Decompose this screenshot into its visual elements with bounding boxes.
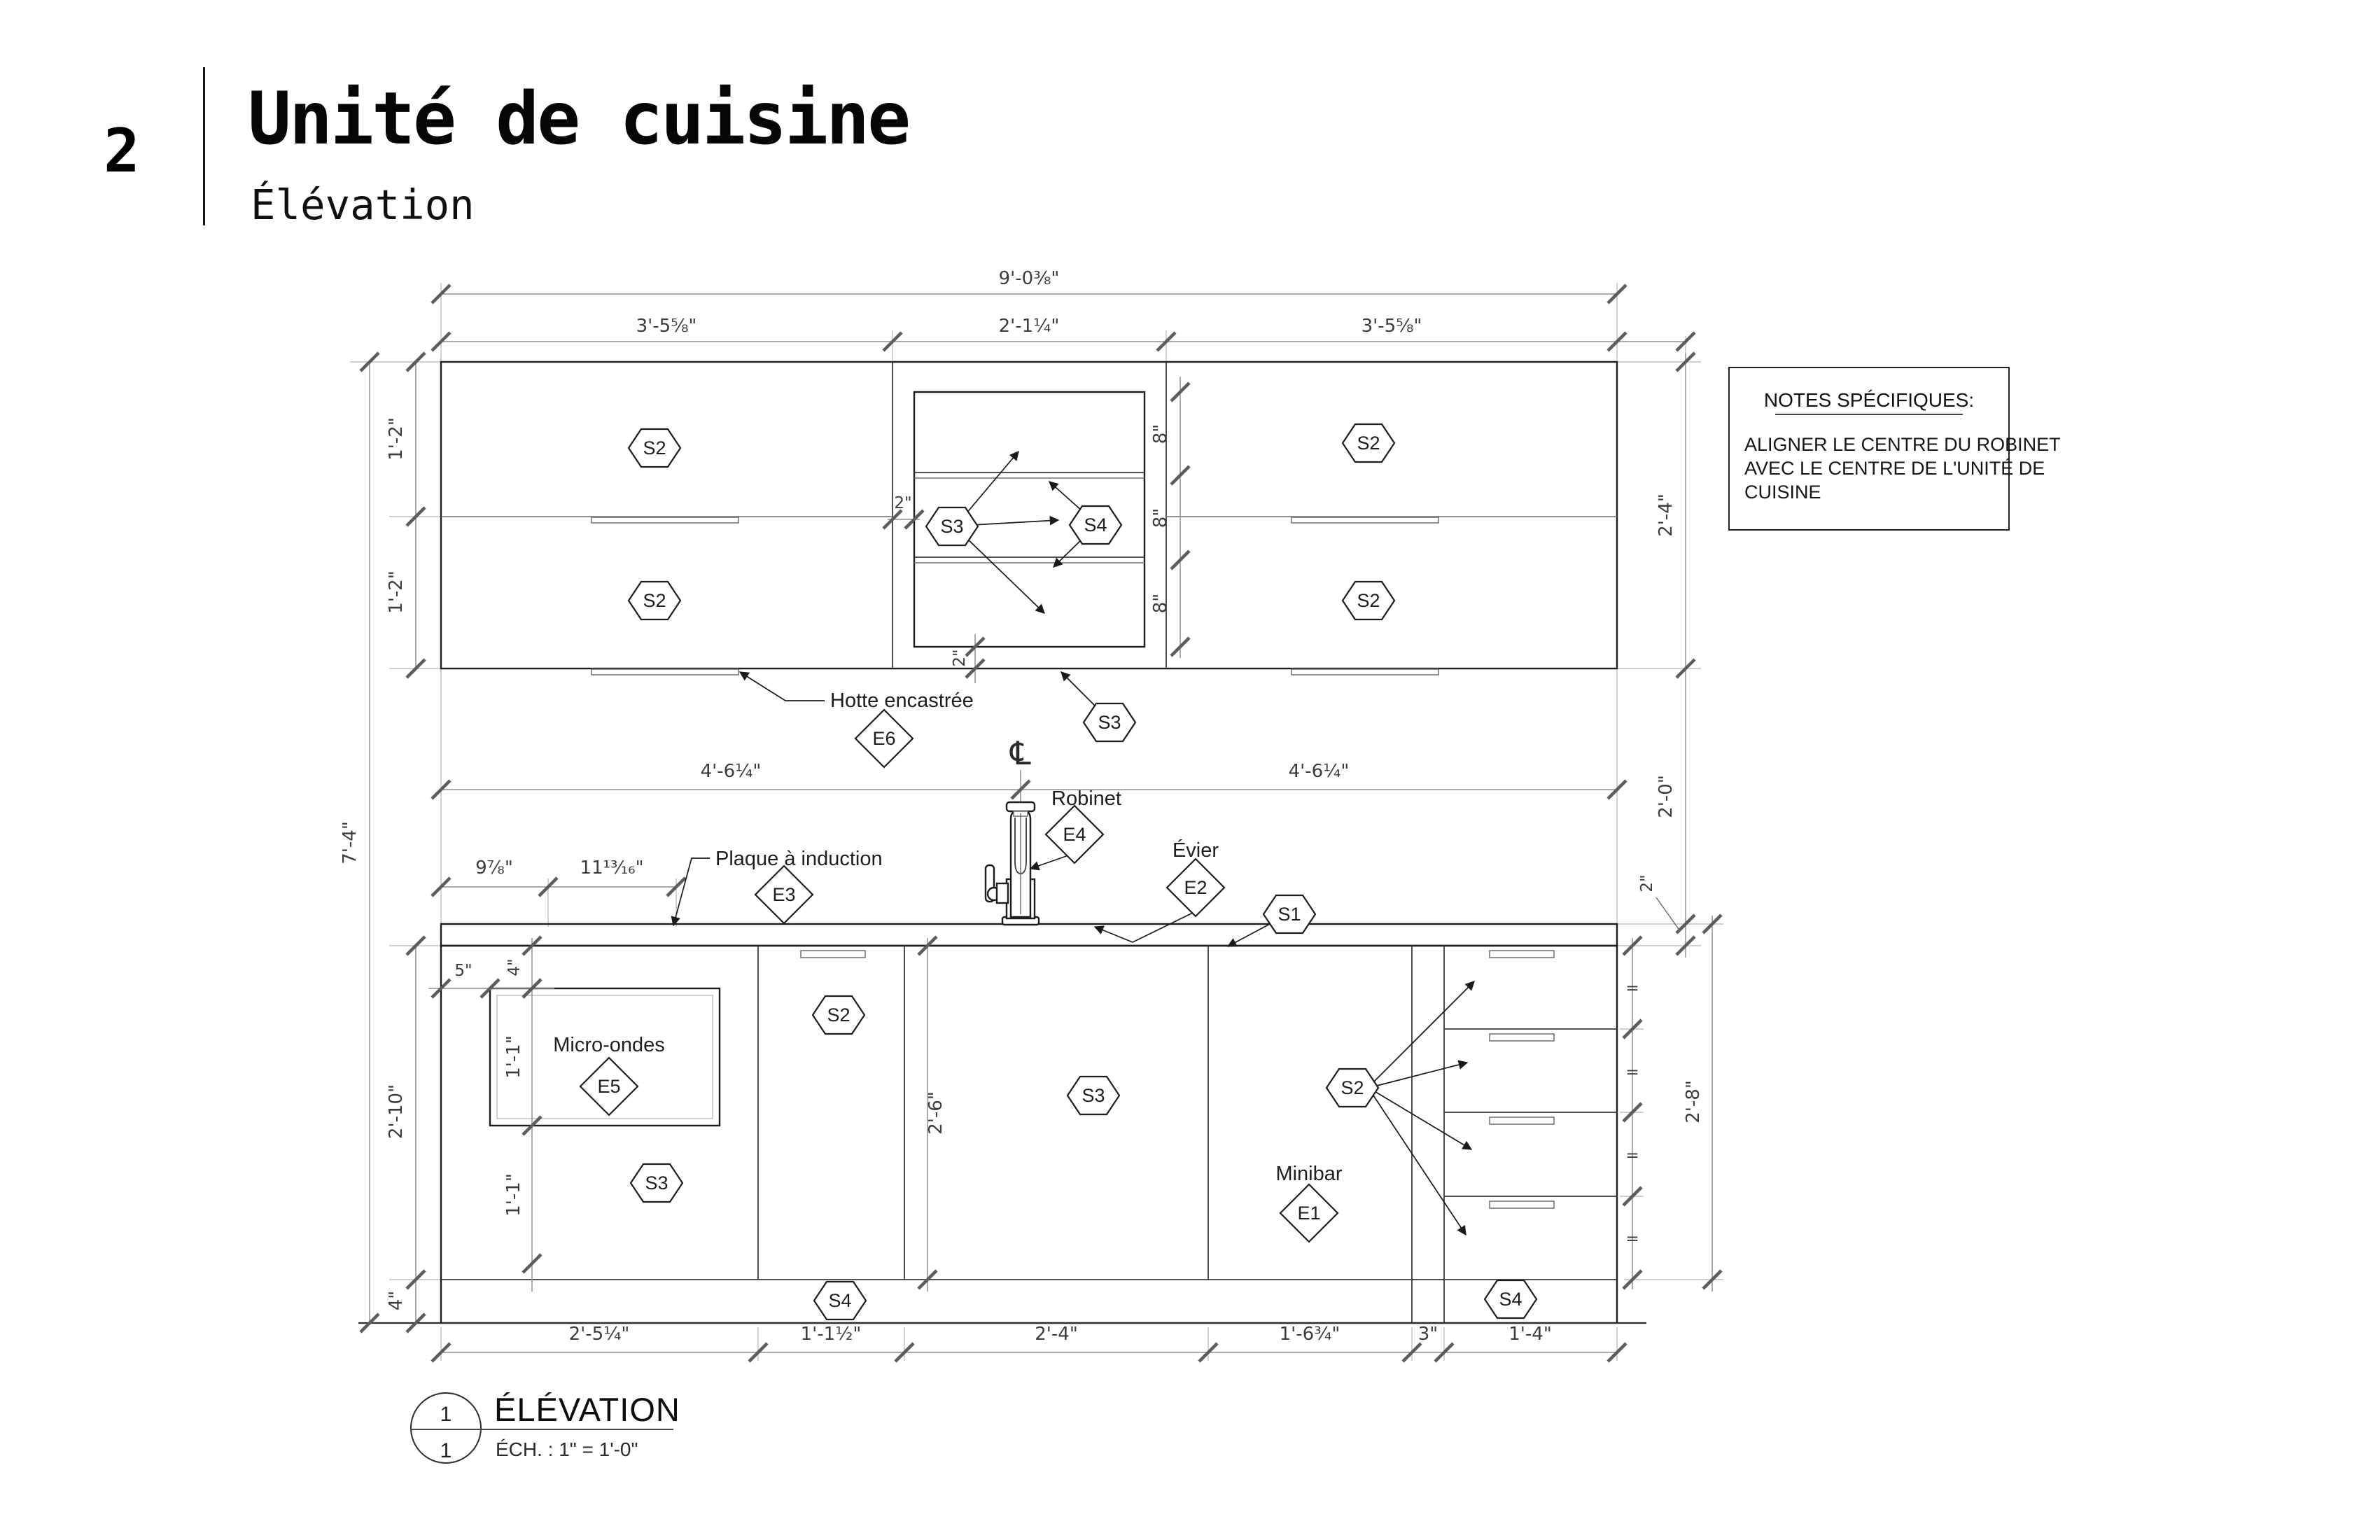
dim-label: 2'-10"	[386, 1084, 407, 1139]
tag-s2: S2	[813, 996, 864, 1034]
dim-label: 3'-5⅝"	[1361, 316, 1422, 337]
countertop	[441, 924, 1617, 946]
cooktop-label: Plaque à induction	[715, 848, 883, 870]
view-title: 1 1 ÉLÉVATION ÉCH. : 1" = 1'-0"	[411, 1391, 680, 1463]
extension-lines	[350, 283, 1723, 1361]
notes-box: NOTES SPÉCIFIQUES: ALIGNER LE CENTRE DU …	[1729, 367, 2061, 530]
door-pull	[1291, 517, 1438, 523]
tag-text: E1	[1297, 1203, 1320, 1224]
door-pull	[591, 669, 738, 675]
dim-label: 2"	[894, 494, 911, 512]
dim-label: 2'-1¼"	[999, 316, 1060, 337]
elevation-drawing: ℄ 9'-0⅜" 3'-5⅝" 2'-1¼"	[0, 0, 2380, 1540]
dim-base-height: 2'-10" 4"	[386, 937, 425, 1332]
tag-s2: S2	[629, 429, 680, 467]
dim-label: 4"	[386, 1291, 407, 1311]
tag-text: S2	[1357, 433, 1380, 454]
shelf-tag-arrows	[965, 451, 1098, 708]
tag-e3: E3	[755, 866, 813, 923]
dim-label: 8"	[1150, 508, 1171, 528]
dim-label: 7'-4"	[339, 821, 360, 864]
dim-label: 3"	[1418, 1324, 1438, 1345]
door-pull	[801, 951, 865, 958]
dim-label: 5"	[454, 962, 472, 980]
tag-text: S2	[643, 437, 666, 458]
notes-line: AVEC LE CENTRE DE L'UNITÉ DE	[1744, 458, 2045, 479]
dim-label: 8"	[1150, 594, 1171, 614]
dim-label: 1'-1½"	[801, 1324, 862, 1345]
drawer-pull	[1490, 1034, 1554, 1041]
view-title-name: ÉLÉVATION	[494, 1391, 680, 1428]
dim-label: 2"	[951, 649, 969, 666]
dim-bottom-row: 2'-5¼" 1'-1½" 2'-4" 1'-6¾" 3" 1'-4"	[432, 1324, 1626, 1361]
microwave-label: Micro-ondes	[553, 1034, 665, 1056]
drawer-pull	[1490, 1201, 1554, 1208]
door-pull	[1291, 669, 1438, 675]
dim-label: 1'-2"	[386, 417, 407, 461]
drawer-pull	[1490, 951, 1554, 958]
dim-label: 1'-1"	[503, 1035, 524, 1079]
tag-s3: S3	[1084, 703, 1135, 741]
dim-label: 2'-6"	[925, 1091, 946, 1135]
dim-cooktop: 9⅞" 11¹³⁄₁₆"	[432, 857, 685, 896]
tag-text: E3	[772, 884, 795, 905]
dim-label: 8"	[1150, 424, 1171, 444]
dim-label: 2'-8"	[1683, 1080, 1704, 1123]
tag-text: S3	[940, 516, 963, 537]
tag-s4: S4	[1485, 1280, 1536, 1318]
dim-label: =	[1625, 1147, 1639, 1165]
drawer-pull	[1490, 1117, 1554, 1124]
tag-e4: E4	[1046, 806, 1103, 863]
dim-label: 2"	[1638, 874, 1656, 892]
tag-text: E6	[872, 728, 895, 749]
dim-label: 2'-0"	[1655, 775, 1676, 818]
tag-s2: S2	[1343, 582, 1394, 619]
tag-text: S3	[645, 1172, 668, 1193]
tag-text: S4	[1084, 514, 1107, 535]
dim-label: =	[1625, 979, 1639, 997]
tag-text: S4	[1499, 1289, 1522, 1310]
minibar-label: Minibar	[1275, 1163, 1342, 1185]
dim-upper-sections: 3'-5⅝" 2'-1¼" 3'-5⅝"	[432, 316, 1695, 351]
notes-line: CUISINE	[1744, 482, 1821, 503]
dim-drawer-equal: = = = =	[1623, 937, 1641, 1289]
faucet-label: Robinet	[1051, 787, 1121, 810]
dim-label: 2'-4"	[1035, 1324, 1078, 1345]
dim-label: 4'-6¼"	[1289, 761, 1350, 782]
tag-text: S2	[1357, 590, 1380, 611]
sheet-ref: 1	[440, 1439, 452, 1462]
dim-shelf-gaps: 8" 8" 8"	[1150, 377, 1189, 658]
detail-number: 1	[440, 1403, 452, 1426]
dim-right-heights: 2'-4" 2'-0" 2"	[1638, 353, 1695, 958]
tag-s2: S2	[1326, 1069, 1378, 1107]
tag-s4: S4	[1070, 506, 1121, 544]
view-title-scale: ÉCH. : 1" = 1'-0"	[496, 1438, 638, 1460]
tag-text: E4	[1063, 824, 1086, 845]
sheet: 2 Unité de cuisine Élévation	[0, 0, 2380, 1540]
tag-text: S2	[643, 590, 666, 611]
dim-label: 9'-0⅜"	[999, 268, 1060, 289]
tag-text: E2	[1184, 877, 1207, 898]
tag-e1: E1	[1280, 1184, 1338, 1242]
dim-sink-door: 2'-6"	[918, 937, 946, 1291]
upper-cabinets	[441, 362, 1617, 675]
dim-overall-width: 9'-0⅜"	[432, 268, 1626, 303]
dim-label: 1'-6¾"	[1280, 1324, 1340, 1345]
tag-text: S3	[1098, 712, 1121, 733]
dim-label: 1'-1"	[503, 1173, 524, 1217]
tag-s4: S4	[814, 1282, 866, 1319]
notes-line: ALIGNER LE CENTRE DU ROBINET	[1744, 434, 2061, 455]
dim-label: 1'-4"	[1508, 1324, 1552, 1345]
base-cabinets	[441, 946, 1617, 1323]
dim-label: 2'-5¼"	[569, 1324, 630, 1345]
centerline-symbol: ℄	[1009, 734, 1031, 772]
faucet	[986, 802, 1039, 925]
dim-label: 3'-5⅝"	[636, 316, 697, 337]
tag-e6: E6	[855, 710, 913, 767]
tag-text: S4	[828, 1290, 851, 1311]
tag-s3: S3	[1067, 1077, 1119, 1114]
dim-label: =	[1625, 1230, 1639, 1248]
dim-upper-doors: 1'-2" 1'-2"	[386, 353, 425, 678]
dim-drawer-stack: 2'-8"	[1683, 915, 1721, 1291]
tag-s2: S2	[1343, 424, 1394, 462]
tag-text: E5	[597, 1076, 620, 1097]
tag-text: S2	[1340, 1077, 1364, 1098]
hood-label: Hotte encastrée	[830, 689, 974, 712]
s1-leader	[1228, 924, 1270, 946]
dim-label: 4"	[505, 958, 524, 976]
tag-e5: E5	[580, 1058, 638, 1115]
dim-label: 4'-6¼"	[701, 761, 762, 782]
dim-total-height: 7'-4"	[339, 353, 379, 1332]
dim-label: =	[1625, 1063, 1639, 1081]
tag-s3: S3	[926, 507, 978, 545]
dim-label: 2'-4"	[1655, 493, 1676, 537]
hood-callout: Hotte encastrée	[740, 672, 974, 712]
tag-text: S2	[827, 1004, 850, 1025]
dim-shelf-inset-bottom: 2"	[951, 634, 984, 683]
dim-label: 9⅞"	[475, 857, 513, 878]
tag-e2: E2	[1167, 859, 1224, 916]
dim-niche: 5" 4" 1'-1" 1'-1"	[428, 937, 554, 1291]
tag-text: S3	[1081, 1085, 1105, 1106]
tag-s3: S3	[631, 1164, 682, 1202]
tag-text: S1	[1277, 904, 1301, 925]
tag-s2: S2	[629, 582, 680, 619]
door-pull	[591, 517, 738, 523]
tag-s1: S1	[1263, 895, 1315, 933]
dim-label: 1'-2"	[386, 570, 407, 614]
notes-title: NOTES SPÉCIFIQUES:	[1764, 389, 1974, 411]
dim-label: 11¹³⁄₁₆"	[580, 857, 643, 878]
dim-shelf-inset-left: 2"	[883, 494, 923, 528]
